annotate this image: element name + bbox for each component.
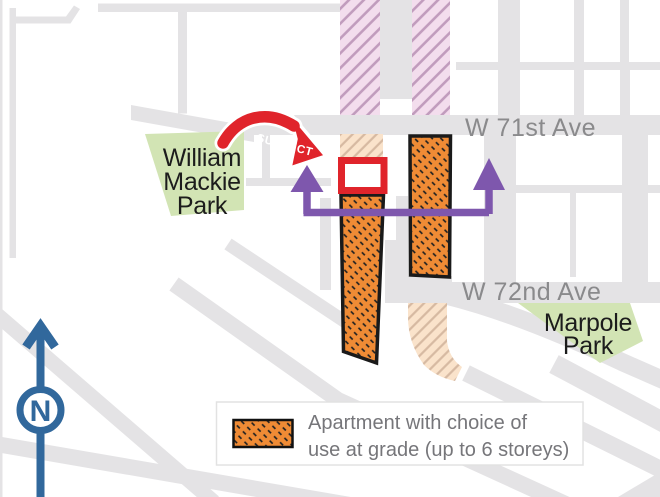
street-label-w72nd: W 72nd Ave <box>462 278 601 306</box>
legend-swatch-orange-hatch <box>234 420 293 447</box>
street-segment <box>620 70 630 115</box>
apartment-parcel-west <box>341 195 384 363</box>
street-segment <box>380 0 413 99</box>
north-label: N <box>30 395 52 428</box>
north-compass-icon: N <box>20 326 61 497</box>
peach-hatch-zone-north <box>340 134 383 157</box>
apartment-parcel-east <box>410 136 451 277</box>
street-segment-diagonal <box>228 244 350 325</box>
street-segment <box>620 0 629 70</box>
street-segment <box>385 240 408 282</box>
legend-label-line1: Apartment with choice of <box>308 412 527 434</box>
park-label-line: Park <box>563 332 614 360</box>
street-segment <box>396 196 408 244</box>
zoning-map: SUBJECT W 71st Ave W 72nd Ave William Ma… <box>0 0 660 497</box>
street-segment <box>10 8 17 258</box>
street-segment <box>574 0 584 115</box>
street-segment-diagonal <box>618 472 660 497</box>
street-segment <box>178 4 187 114</box>
subject-site-outline <box>342 161 385 191</box>
peach-hatch-zone-arc <box>408 303 462 381</box>
pink-hatch-zone-east <box>412 0 450 115</box>
street-segment <box>570 193 576 277</box>
street-segment <box>456 62 660 70</box>
street-segment <box>622 135 648 288</box>
zoning-map-figure: SUBJECT W 71st Ave W 72nd Ave William Ma… <box>0 0 660 497</box>
street-segment <box>498 0 520 115</box>
street-segment <box>385 276 452 303</box>
legend-label-line2: use at grade (up to 6 storeys) <box>308 439 569 461</box>
street-segment <box>0 0 3 497</box>
legend: Apartment with choice of use at grade (u… <box>217 402 584 465</box>
park-label-line: Park <box>177 192 228 220</box>
pink-hatch-zone-west <box>340 0 380 115</box>
street-segment <box>12 6 80 24</box>
street-segment <box>98 4 341 13</box>
street-label-w71st: W 71st Ave <box>465 114 596 142</box>
